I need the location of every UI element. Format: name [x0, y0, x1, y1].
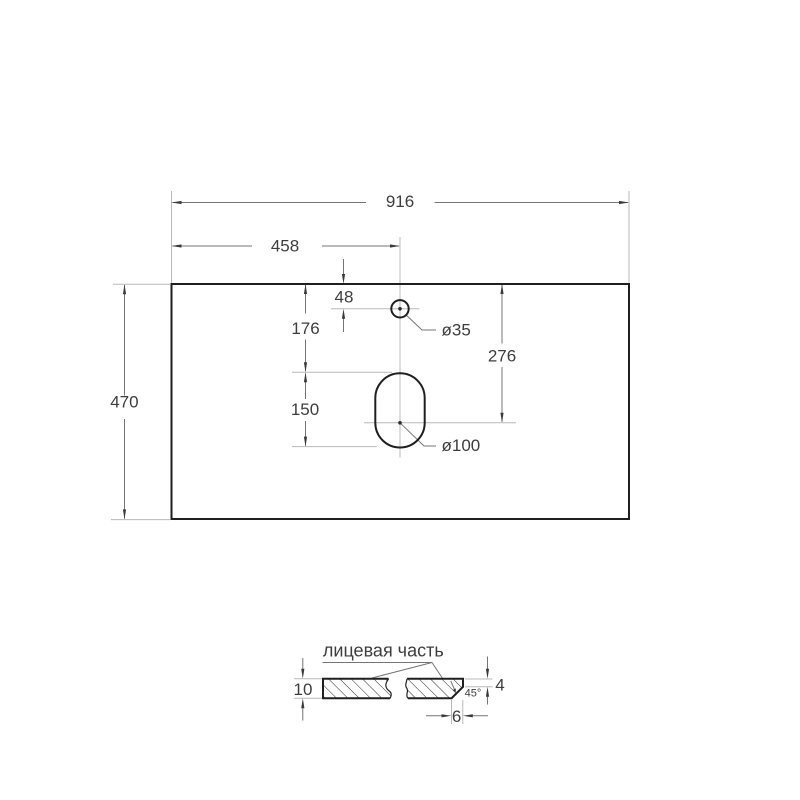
svg-text:6: 6 [452, 707, 461, 726]
svg-text:470: 470 [110, 393, 138, 412]
svg-text:916: 916 [386, 192, 414, 211]
svg-text:10: 10 [294, 680, 313, 699]
svg-text:458: 458 [271, 237, 299, 256]
svg-text:176: 176 [291, 319, 319, 338]
svg-text:лицевая часть: лицевая часть [323, 641, 444, 661]
svg-text:45°: 45° [465, 687, 482, 699]
svg-text:ø35: ø35 [442, 321, 471, 340]
svg-text:48: 48 [335, 288, 354, 307]
svg-text:276: 276 [488, 347, 516, 366]
svg-text:150: 150 [291, 400, 319, 419]
svg-text:4: 4 [495, 676, 504, 695]
svg-text:ø100: ø100 [442, 436, 481, 455]
